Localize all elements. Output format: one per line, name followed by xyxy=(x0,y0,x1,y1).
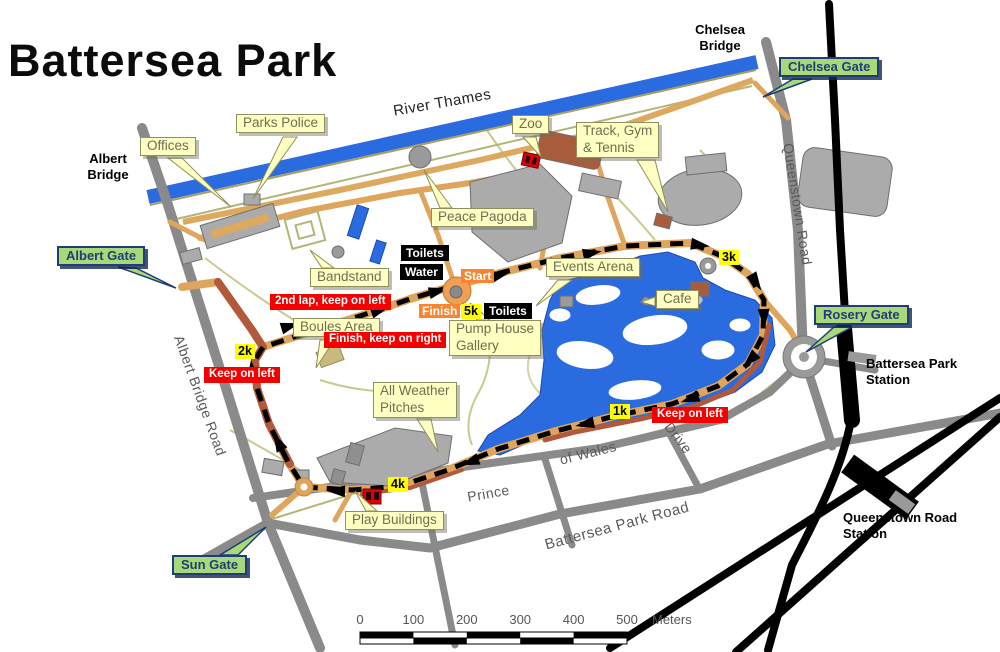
place-label-events-arena: Events Arena xyxy=(546,258,640,277)
scale-tick: 500 xyxy=(616,612,638,627)
place-label-parks-police: Parks Police xyxy=(236,114,325,133)
scale-unit: Meters xyxy=(652,612,692,627)
map-title: Battersea Park xyxy=(8,34,337,88)
battersea-park-map: Battersea Park Chelsea Bridge Albert Bri… xyxy=(0,0,1000,652)
km-marker-1k: 1k xyxy=(610,404,630,419)
toilets-icon-zoo xyxy=(521,152,540,168)
gate-label-albert: Albert Gate xyxy=(57,246,145,266)
scale-tick: 100 xyxy=(403,612,425,627)
gate-label-chelsea: Chelsea Gate xyxy=(779,57,879,77)
toilets-label-pump-house: Toilets xyxy=(484,303,532,319)
place-label-cafe: Cafe xyxy=(656,290,699,309)
fountain-ponds xyxy=(347,205,386,264)
scale-tick: 400 xyxy=(563,612,585,627)
scale-bar xyxy=(360,632,627,644)
place-label-offices: Offices xyxy=(140,137,196,156)
scale-tick: 0 xyxy=(356,612,363,627)
toilets-label-bandstand: Toilets xyxy=(401,245,449,261)
start-marker: Start xyxy=(461,269,494,283)
gate-label-sun: Sun Gate xyxy=(172,555,247,575)
instruction-keep-left-southeast: Keep on left xyxy=(652,407,728,423)
scale-tick: 200 xyxy=(456,612,478,627)
place-label-play-buildings: Play Buildings xyxy=(345,511,444,530)
place-label-zoo: Zoo xyxy=(512,115,549,134)
queenstown-road-station-label: Queenstown Road Station xyxy=(843,510,957,543)
chelsea-bridge-label: Chelsea Bridge xyxy=(680,22,760,55)
buildings-east xyxy=(796,146,893,218)
place-label-peace-pagoda: Peace Pagoda xyxy=(431,208,534,227)
instruction-2nd-lap: 2nd lap, keep on left xyxy=(270,294,391,310)
place-label-track-gym-tennis: Track, Gym & Tennis xyxy=(576,122,659,158)
battersea-park-station-label: Battersea Park Station xyxy=(866,356,957,389)
water-label: Water xyxy=(400,264,443,280)
place-label-pump-house-gallery: Pump House Gallery xyxy=(449,320,541,356)
albert-bridge-label: Albert Bridge xyxy=(73,151,143,184)
km-marker-4k: 4k xyxy=(388,477,408,492)
instruction-finish-keep-right: Finish, keep on right xyxy=(324,332,446,348)
instruction-keep-left-west: Keep on left xyxy=(204,367,280,383)
place-label-bandstand: Bandstand xyxy=(310,268,389,287)
km-marker-2k: 2k xyxy=(235,344,255,359)
battersea-park-station-block xyxy=(844,328,852,420)
place-label-all-weather-pitches: All Weather Pitches xyxy=(373,382,457,418)
km-marker-5k: 5k xyxy=(461,304,481,319)
km-marker-3k: 3k xyxy=(719,250,739,265)
finish-marker: Finish xyxy=(419,304,460,318)
gate-label-rosery: Rosery Gate xyxy=(814,305,909,325)
scale-tick: 300 xyxy=(509,612,531,627)
